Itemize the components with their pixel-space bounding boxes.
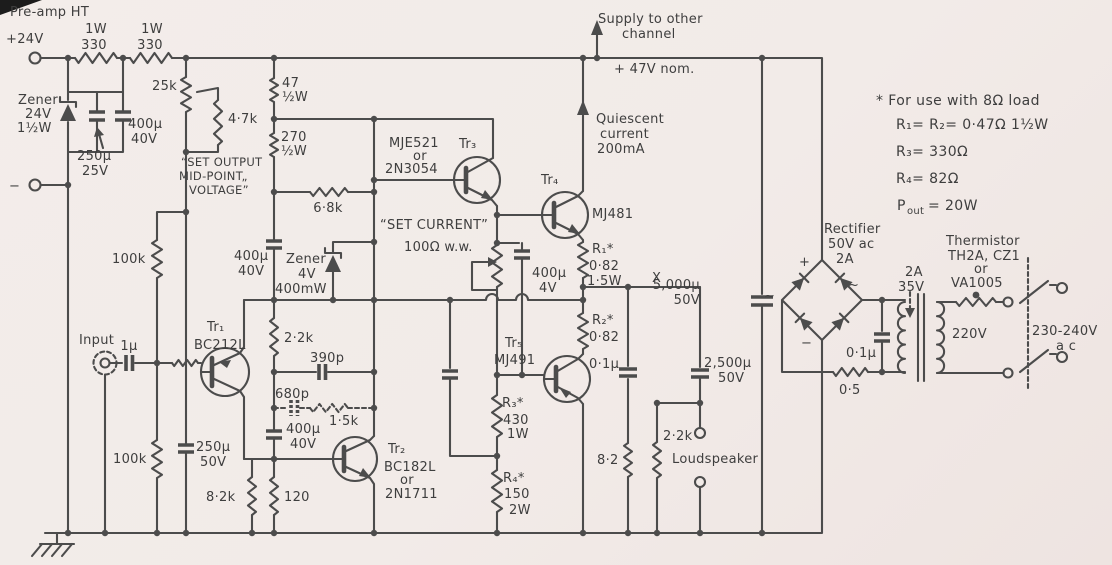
label-220v: 220V xyxy=(952,327,987,342)
terminal-minus xyxy=(30,180,41,191)
label-rail-47v: + 47V nom. xyxy=(614,62,695,77)
label-c400-4v-2: 4V xyxy=(539,281,557,296)
label-r3-name: R₃* xyxy=(502,396,524,411)
label-preset-note-2: MID-POINT„ xyxy=(179,169,248,183)
secondary-winding xyxy=(898,302,905,373)
label-bridge-plus: + xyxy=(799,255,810,270)
label-supply-2: channel xyxy=(622,27,676,42)
transistor-tr5 xyxy=(544,354,590,404)
note-pout-p: P xyxy=(897,198,906,214)
label-secondary-2: 35V xyxy=(898,280,924,295)
preset-100ohm xyxy=(492,245,502,287)
label-r330b: 330 xyxy=(137,38,163,53)
resistor-2k2-ls xyxy=(653,442,661,478)
capacitor-400u-40v-d xyxy=(442,371,458,378)
label-01u-mains: 0·1μ xyxy=(846,346,876,361)
quiescent-arrow xyxy=(577,100,589,115)
capacitor-01u-mains xyxy=(874,334,890,341)
terminal-plus-24v xyxy=(30,53,41,64)
label-zener24-3: 1½W xyxy=(17,121,52,136)
label-preamp-ht: Pre-amp HT xyxy=(10,5,89,20)
resistor-8r2 xyxy=(624,443,632,477)
capacitor-2500u xyxy=(691,370,709,377)
label-tr3-type-3: 2N3054 xyxy=(385,162,438,177)
label-thermistor-3: or xyxy=(974,262,988,277)
label-r2-name: R₂* xyxy=(592,313,614,328)
label-r4-name: R₄* xyxy=(503,471,525,486)
capacitor-250u-50v xyxy=(178,445,194,452)
wire-preamp-supply xyxy=(40,58,123,533)
label-tr3: Tr₃ xyxy=(458,137,477,152)
capacitor-400u-40v-c xyxy=(266,431,282,438)
label-2k2-ls: 2·2k xyxy=(663,429,693,444)
label-2k2: 2·2k xyxy=(284,331,314,346)
label-ac-right: ~ xyxy=(848,278,859,293)
label-plus-24v: +24V xyxy=(6,32,44,47)
label-tr1: Tr₁ xyxy=(206,320,225,335)
note-line-1: * For use with 8Ω load xyxy=(876,93,1040,109)
transformer-core xyxy=(918,294,924,381)
label-r270-w: ½W xyxy=(281,144,307,159)
capacitor-250u-25v xyxy=(89,112,105,120)
label-r330a: 330 xyxy=(81,38,107,53)
label-secondary-1: 2A xyxy=(905,265,923,280)
label-supply-1: Supply to other xyxy=(598,12,703,27)
label-thermistor-1: Thermistor xyxy=(945,234,1020,249)
capacitor-400u-4v xyxy=(514,251,530,258)
label-100k-bottom: 100k xyxy=(113,452,147,467)
resistor-r3 xyxy=(492,395,502,437)
label-c250-25-1: 250μ xyxy=(77,149,111,164)
label-100k-top: 100k xyxy=(112,252,146,267)
resistor-0r5 xyxy=(833,368,868,376)
note-pout-val: = 20W xyxy=(928,198,978,214)
label-8k2: 8·2k xyxy=(206,490,236,505)
label-input: Input xyxy=(79,333,114,348)
label-120: 120 xyxy=(284,490,310,505)
label-r3-val: 430 xyxy=(503,413,529,428)
label-tr5: Tr₅ xyxy=(504,336,523,351)
capacitor-1u xyxy=(126,355,133,371)
label-mains-1: 230-240V xyxy=(1032,324,1098,339)
label-c250-25-2: 25V xyxy=(82,164,108,179)
label-r330a-w: 1W xyxy=(85,22,107,37)
label-rectifier-3: 2A xyxy=(836,252,854,267)
label-quiescent-2: current xyxy=(600,127,649,142)
transistor-tr4 xyxy=(542,191,588,240)
label-rectifier-2: 50V ac xyxy=(828,237,874,252)
transistor-tr3 xyxy=(454,157,500,206)
label-r4-val: 150 xyxy=(504,487,530,502)
label-390p: 390p xyxy=(310,351,344,366)
capacitor-390p xyxy=(319,364,326,380)
label-quiescent-3: 200mA xyxy=(597,142,645,157)
label-rectifier-1: Rectifier xyxy=(824,222,881,237)
resistor-8k2 xyxy=(248,477,256,515)
label-thermistor-4: VA1005 xyxy=(951,276,1003,291)
label-c400a-1: 400μ xyxy=(128,117,162,132)
switch-terminal-top xyxy=(1057,283,1067,293)
label-loudspeaker: Loudspeaker xyxy=(672,452,759,467)
label-100ohm: 100Ω w.w. xyxy=(404,240,473,255)
label-01u-out: 0·1μ xyxy=(589,357,619,372)
label-zener24-1: Zener xyxy=(18,93,58,108)
label-bridge-minus: − xyxy=(801,336,812,351)
label-r1-val: 0·82 xyxy=(589,259,619,274)
secondary-35v-arrow xyxy=(905,292,915,318)
label-r1-w: 1·5W xyxy=(587,274,622,289)
note-line-4: R₄= 82Ω xyxy=(896,171,959,187)
resistor-100k-top xyxy=(152,240,162,278)
label-zener4-2: 4V xyxy=(298,267,316,282)
loudspeaker-terminal-top xyxy=(695,428,705,438)
transistor-tr2 xyxy=(333,436,377,533)
label-pointer-250u xyxy=(94,127,104,148)
label-c400a-2: 40V xyxy=(131,132,157,147)
label-c250-50-2: 50V xyxy=(200,455,226,470)
label-2500u-2: 50V xyxy=(718,371,744,386)
resistor-120 xyxy=(270,477,278,515)
mains-terminal-live xyxy=(1004,298,1013,307)
note-pout-sub: out xyxy=(907,206,924,217)
label-r47-w: ½W xyxy=(282,90,308,105)
label-tr4: Tr₄ xyxy=(540,173,559,188)
label-tr2-type-2: or xyxy=(400,473,414,488)
label-680p: 680p xyxy=(275,387,309,402)
label-r4-w: 2W xyxy=(509,503,531,518)
resistor-4k7 xyxy=(214,100,222,145)
input-socket xyxy=(101,359,110,368)
label-r270: 270 xyxy=(281,130,307,145)
resistor-r1 xyxy=(578,242,588,278)
label-c400b-1: 400μ xyxy=(234,249,268,264)
label-tr2: Tr₂ xyxy=(387,442,406,457)
label-tr1-type: BC212L xyxy=(194,338,246,353)
label-8r2: 8·2 xyxy=(597,453,619,468)
mains-transformer xyxy=(898,294,944,381)
resistor-r2 xyxy=(578,313,588,349)
capacitor-400u-40v-b xyxy=(266,241,282,248)
resistor-6k8 xyxy=(310,188,348,196)
label-r2-val: 0·82 xyxy=(589,330,619,345)
resistor-270 xyxy=(270,133,278,157)
label-c400b-2: 40V xyxy=(238,264,264,279)
schematic-page: Pre-amp HT +24V − 1W 330 1W 330 Zener 24… xyxy=(0,0,1112,565)
label-mains-2: a c xyxy=(1056,339,1076,354)
preset-25k xyxy=(181,77,191,112)
circuit-schematic: Pre-amp HT +24V − 1W 330 1W 330 Zener 24… xyxy=(0,0,1112,565)
label-r3-w: 1W xyxy=(507,427,529,442)
note-line-3: R₃= 330Ω xyxy=(896,144,968,160)
label-r330b-w: 1W xyxy=(141,22,163,37)
label-zener4-1: Zener xyxy=(286,252,326,267)
label-tr4-type: MJ481 xyxy=(592,207,633,222)
label-c400c-1: 400μ xyxy=(286,422,320,437)
thermistor-dot xyxy=(973,292,980,299)
resistor-47 xyxy=(270,78,278,102)
label-1k5: 1·5k xyxy=(329,414,359,429)
label-quiescent-1: Quiescent xyxy=(596,112,664,127)
label-tr5-type: MJ491 xyxy=(494,353,535,368)
label-6k8: 6·8k xyxy=(313,201,343,216)
label-0r5: 0·5 xyxy=(839,383,861,398)
label-r1-name: R₁* xyxy=(592,242,614,257)
resistor-2k2 xyxy=(270,318,278,356)
label-5000u-1: 5,000μ xyxy=(653,278,700,293)
label-set-current: “SET CURRENT” xyxy=(380,218,488,233)
resistor-1k5-optional xyxy=(310,404,348,412)
loudspeaker-terminal-bottom xyxy=(695,477,705,487)
mains-terminal-neutral xyxy=(1004,369,1013,378)
label-minus: − xyxy=(9,179,20,194)
label-25k: 25k xyxy=(152,79,177,94)
resistor-330-1 xyxy=(75,53,117,63)
wire-output-network xyxy=(628,287,700,533)
label-4k7: 4·7k xyxy=(228,112,258,127)
schematic-labels: Pre-amp HT +24V − 1W 330 1W 330 Zener 24… xyxy=(6,5,1098,518)
primary-winding xyxy=(937,302,944,373)
label-1u: 1μ xyxy=(120,339,137,354)
label-c250-50-1: 250μ xyxy=(196,440,230,455)
thermistor-element xyxy=(956,298,996,306)
label-preset-note-1: “SET OUTPUT xyxy=(181,155,263,169)
capacitor-01u-output xyxy=(619,369,637,376)
label-tr2-type-3: 2N1711 xyxy=(385,487,438,502)
label-5000u-2: 50V xyxy=(674,293,700,308)
resistor-100k-bottom xyxy=(152,440,162,478)
label-2500u-1: 2,500μ xyxy=(704,356,751,371)
resistor-r4 xyxy=(492,470,502,512)
label-c400-4v-1: 400μ xyxy=(532,266,566,281)
label-zener4-3: 400mW xyxy=(275,282,327,297)
label-ac-left: ~ xyxy=(764,289,775,304)
ground-symbol xyxy=(32,533,74,556)
resistor-330-2 xyxy=(130,53,172,63)
label-zener24-2: 24V xyxy=(25,107,51,122)
note-line-2: R₁= R₂= 0·47Ω 1½W xyxy=(896,117,1048,133)
label-r47: 47 xyxy=(282,76,299,91)
label-c400c-2: 40V xyxy=(290,437,316,452)
label-preset-note-3: VOLTAGE” xyxy=(189,183,249,197)
capacitor-680p-optional xyxy=(291,400,298,416)
